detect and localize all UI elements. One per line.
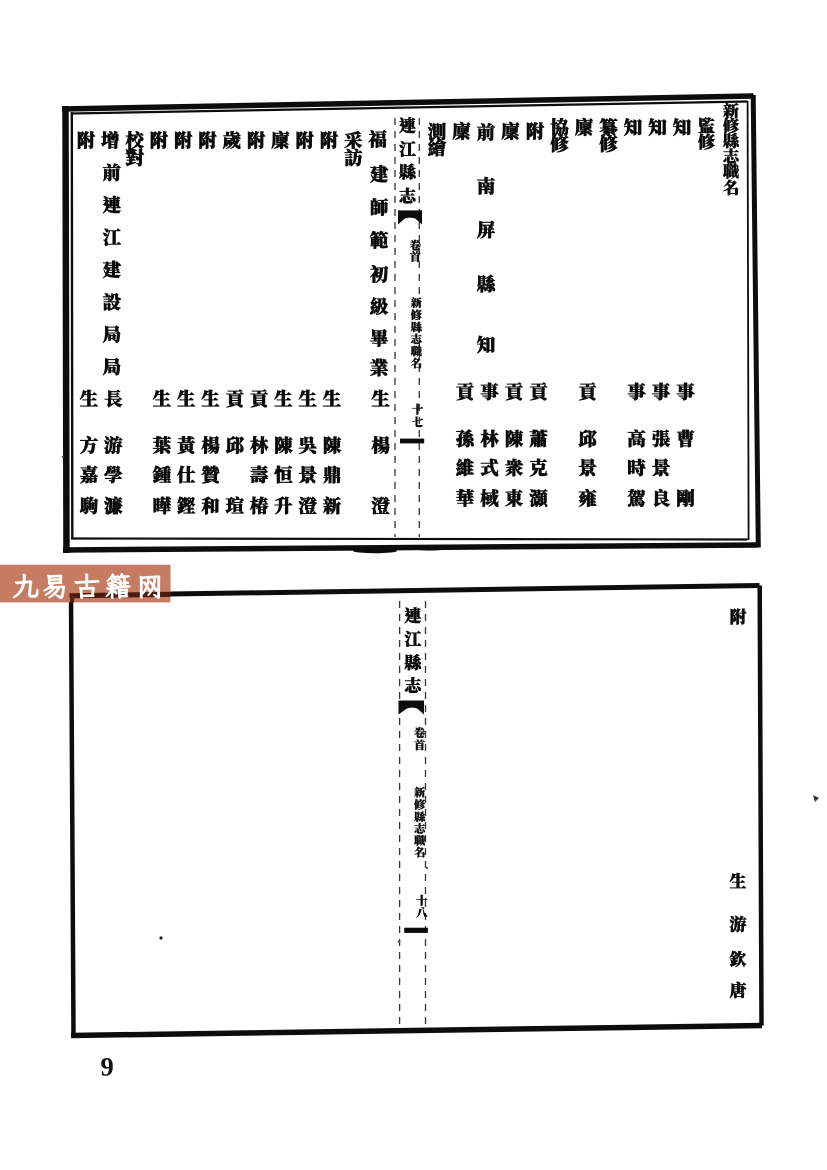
- svg-text:9: 9: [101, 1052, 114, 1082]
